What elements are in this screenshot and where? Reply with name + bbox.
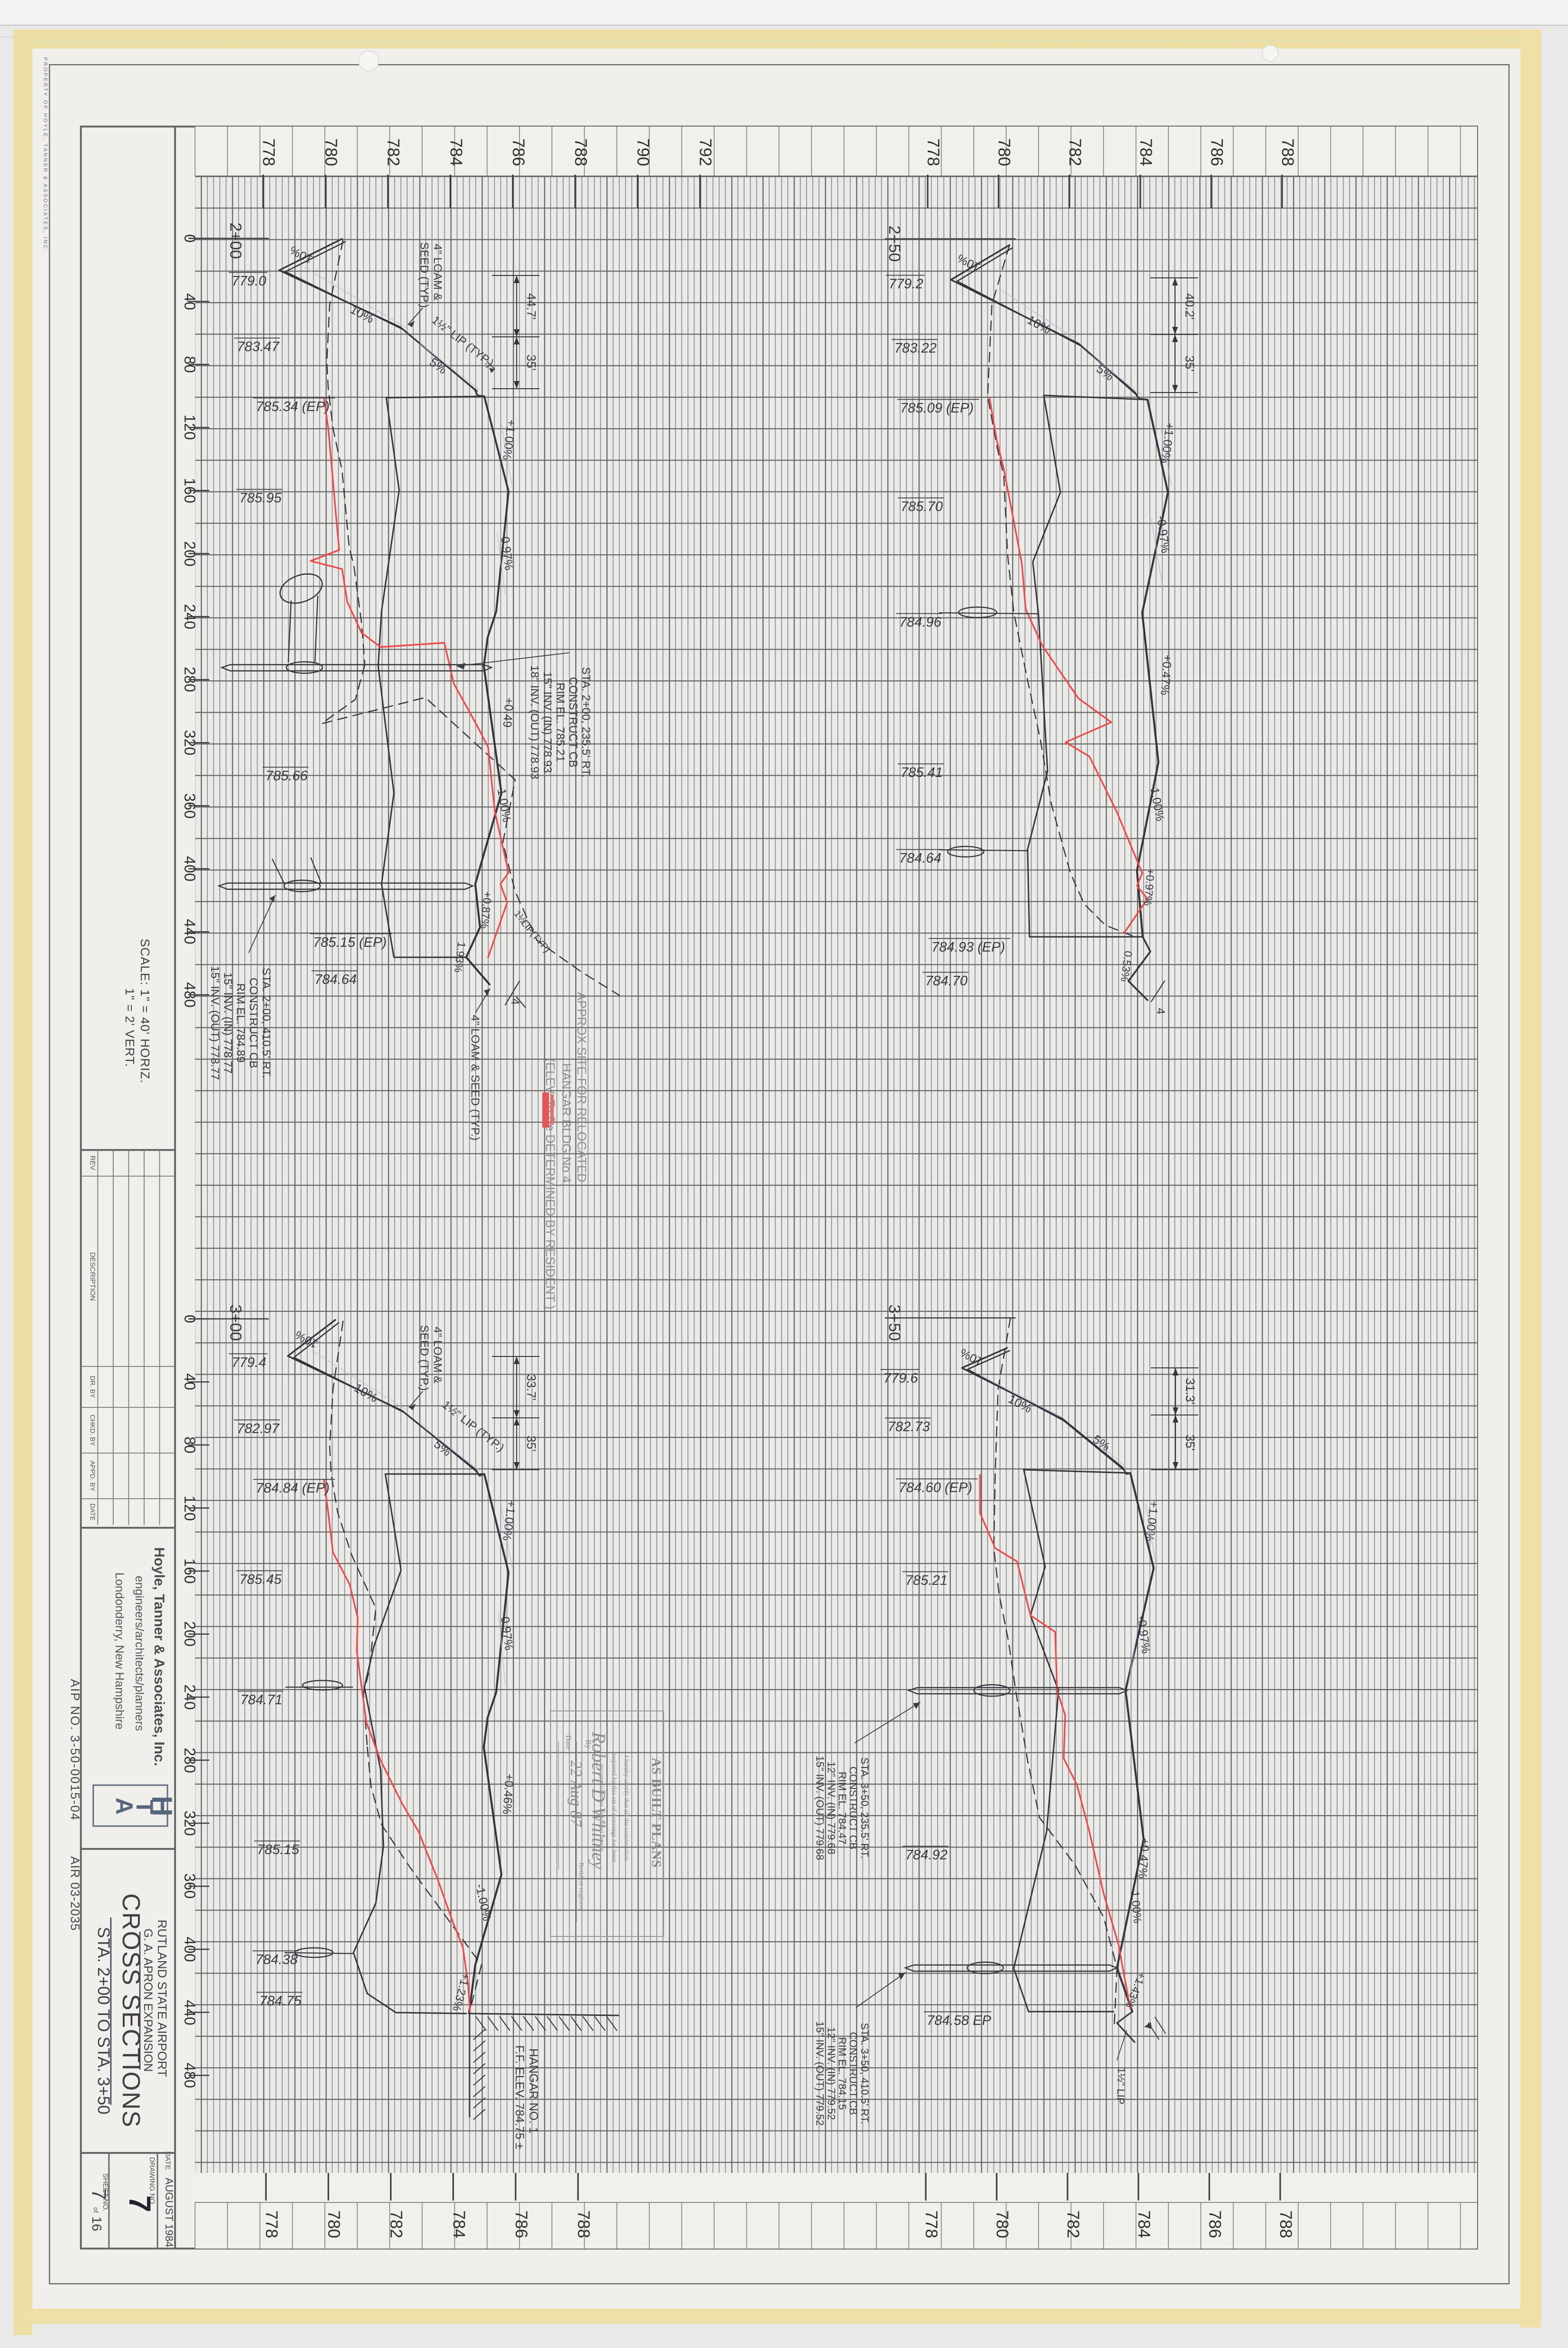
svg-text:788: 788 (571, 138, 590, 166)
svg-text:CONSTRUCT CB: CONSTRUCT CB (847, 1767, 859, 1849)
svg-text:778: 778 (922, 2210, 941, 2238)
svg-text:PROPERTY OF HOYLE, TANNER & AS: PROPERTY OF HOYLE, TANNER & ASSOCIATES, … (42, 57, 48, 253)
svg-text:15" INV. (OUT) 779.68: 15" INV. (OUT) 779.68 (814, 1756, 826, 1860)
svg-text:31.3': 31.3' (1183, 1378, 1197, 1405)
svg-text:3+00: 3+00 (226, 1305, 245, 1341)
svg-text:engineers/architects/planners: engineers/architects/planners (133, 1576, 146, 1731)
svg-text:778: 778 (259, 138, 278, 166)
svg-text:+0.46%: +0.46% (500, 1773, 516, 1815)
svg-text:782.73: 782.73 (888, 1419, 930, 1434)
svg-text:784.38: 784.38 (255, 1952, 298, 1967)
svg-text:Date: Date (564, 1735, 572, 1749)
svg-text:18" INV. (OUT) 778.93: 18" INV. (OUT) 778.93 (528, 665, 541, 779)
svg-text:Resident engineer: Resident engineer (578, 1863, 585, 1911)
svg-text:40.2': 40.2' (1183, 293, 1197, 320)
svg-text:784.96: 784.96 (899, 615, 942, 630)
svg-text:33.7': 33.7' (524, 1374, 539, 1401)
svg-text:44.7': 44.7' (524, 293, 539, 320)
svg-text:Hoyle, Tanner & Associates, In: Hoyle, Tanner & Associates, Inc. (151, 1547, 167, 1766)
svg-text:784.93 (EP): 784.93 (EP) (931, 940, 1005, 955)
svg-text:792: 792 (696, 138, 715, 166)
svg-text:4" LOAM &: 4" LOAM & (431, 1326, 444, 1383)
svg-text:35': 35' (524, 1435, 539, 1452)
svg-text:RUTLAND STATE AIRPORT: RUTLAND STATE AIRPORT (155, 1920, 169, 2077)
svg-text:CONSTRUCT CB: CONSTRUCT CB (567, 677, 579, 767)
svg-text:CONSTRUCT CB: CONSTRUCT CB (847, 2032, 859, 2115)
svg-text:+0.47%: +0.47% (1158, 654, 1174, 696)
svg-text:SCALE: 1" = 40' HORIZ.: SCALE: 1" = 40' HORIZ. (138, 939, 152, 1083)
svg-text:35': 35' (1183, 1434, 1197, 1451)
svg-text:784.75: 784.75 (259, 1994, 302, 2009)
svg-text:784: 784 (1137, 138, 1155, 166)
svg-text:RIM EL. 784.15: RIM EL. 784.15 (836, 2037, 848, 2110)
svg-text:779.2: 779.2 (889, 276, 923, 292)
svg-text:778: 778 (262, 2210, 281, 2238)
svg-text:786: 786 (509, 138, 528, 166)
svg-text:784.70: 784.70 (925, 973, 968, 989)
svg-text:782: 782 (1066, 138, 1084, 166)
svg-text:HANGAR NO. 1: HANGAR NO. 1 (527, 2048, 540, 2133)
svg-text:HANGAR BLDG No 4,: HANGAR BLDG No 4, (559, 1063, 574, 1187)
svg-text:784: 784 (450, 2210, 468, 2238)
svg-text:+0.49: +0.49 (500, 697, 516, 728)
svg-text:782: 782 (387, 2210, 405, 2238)
svg-text:785.66: 785.66 (265, 768, 308, 784)
svg-text:780: 780 (995, 138, 1013, 166)
svg-text:790: 790 (634, 138, 652, 166)
svg-text:3+50: 3+50 (885, 1305, 903, 1341)
svg-text:RIM EL. 785.21: RIM EL. 785.21 (554, 683, 567, 762)
svg-text:784.92: 784.92 (905, 1847, 948, 1863)
svg-text:Londonderry, New Hampshire: Londonderry, New Hampshire (113, 1572, 126, 1729)
svg-text:RIM EL. 784.89: RIM EL. 784.89 (234, 983, 247, 1063)
svg-text:F.F. ELEV. 784.75 ±: F.F. ELEV. 784.75 ± (513, 2045, 526, 2150)
svg-text:780: 780 (322, 138, 340, 166)
svg-text:784.58 EP: 784.58 EP (927, 2013, 991, 2028)
svg-text:784: 784 (1135, 2210, 1153, 2238)
svg-text:DESCRIPTION: DESCRIPTION (88, 1252, 97, 1301)
svg-text:785.41: 785.41 (901, 765, 943, 780)
svg-text:780: 780 (324, 2210, 343, 2238)
svg-text:784.64: 784.64 (899, 851, 941, 866)
svg-text:15" INV. (IN) 778.77: 15" INV. (IN) 778.77 (221, 972, 234, 1073)
svg-text:+0.47%: +0.47% (1136, 1837, 1152, 1879)
svg-text:DATE: DATE (164, 2152, 172, 2170)
svg-text:785.15: 785.15 (257, 1842, 300, 1857)
svg-text:1" = 2' VERT.: 1" = 2' VERT. (123, 988, 137, 1067)
svg-text:required by this set of drawin: required by this set of drawings has bee… (610, 1754, 617, 1863)
svg-text:AIR 03-2035: AIR 03-2035 (68, 1857, 82, 1931)
svg-text:779.6: 779.6 (883, 1371, 918, 1386)
svg-text:784.60 (EP): 784.60 (EP) (899, 1480, 972, 1495)
svg-text:STA. 2+00 TO STA. 3+50: STA. 2+00 TO STA. 3+50 (94, 1927, 113, 2114)
svg-text:RIM EL. 784.47: RIM EL. 784.47 (836, 1772, 848, 1845)
svg-text:22 Aug 87: 22 Aug 87 (567, 1760, 585, 1827)
svg-text:I hereby certify that all the: I hereby certify that all the constructi… (623, 1755, 630, 1861)
svg-text:CONSTRUCT CB: CONSTRUCT CB (247, 978, 260, 1068)
svg-text:785.34 (EP): 785.34 (EP) (256, 399, 330, 414)
svg-text:779.4: 779.4 (232, 1355, 266, 1370)
svg-text:786: 786 (512, 2210, 530, 2238)
svg-text:Robert D Whitney: Robert D Whitney (588, 1731, 609, 1869)
svg-text:STA. 2+00, 235.5' RT.: STA. 2+00, 235.5' RT. (579, 667, 592, 778)
svg-text:779.0: 779.0 (232, 274, 266, 289)
svg-text:783.22: 783.22 (894, 341, 937, 356)
svg-text:SEED (TYP.): SEED (TYP.) (418, 242, 431, 308)
svg-text:4" LOAM & SEED (TYP.): 4" LOAM & SEED (TYP.) (469, 1015, 481, 1140)
svg-text:784: 784 (447, 138, 465, 166)
svg-text:780: 780 (993, 2210, 1011, 2238)
svg-text:15" INV. (OUT) 779.52: 15" INV. (OUT) 779.52 (814, 2021, 826, 2126)
svg-text:4: 4 (1154, 1008, 1167, 1014)
svg-text:DR. BY: DR. BY (89, 1376, 97, 1398)
svg-text:12" INV. (IN) 779.68: 12" INV. (IN) 779.68 (825, 1761, 837, 1854)
svg-text:785.09 (EP): 785.09 (EP) (900, 401, 974, 416)
svg-text:2+50: 2+50 (885, 226, 903, 262)
svg-text:788: 788 (1278, 138, 1297, 166)
svg-text:15" INV. (OUT) 778.77: 15" INV. (OUT) 778.77 (208, 966, 221, 1080)
svg-text:785.95: 785.95 (239, 491, 282, 506)
svg-text:786: 786 (1207, 138, 1226, 166)
svg-text:AIP NO. 3-50-0015-04: AIP NO. 3-50-0015-04 (68, 1679, 82, 1821)
svg-text:785.45: 785.45 (239, 1572, 282, 1587)
svg-text:784.64: 784.64 (314, 972, 357, 987)
svg-text:DATE: DATE (89, 1503, 97, 1521)
svg-text:782.97: 782.97 (237, 1421, 280, 1436)
svg-text:of: of (92, 2207, 100, 2213)
svg-text:784.84 (EP): 784.84 (EP) (256, 1481, 330, 1496)
svg-text:7: 7 (88, 2189, 110, 2200)
svg-text:788: 788 (574, 2210, 593, 2238)
svg-text:2+00: 2+00 (226, 223, 245, 259)
svg-text:785.21: 785.21 (905, 1573, 948, 1588)
svg-text:786: 786 (1205, 2210, 1224, 2238)
svg-text:785.15 (EP): 785.15 (EP) (313, 935, 387, 950)
svg-text:16: 16 (89, 2216, 104, 2231)
svg-text:STA. 2+00, 410.5' RT.: STA. 2+00, 410.5' RT. (260, 968, 273, 1079)
svg-text:A: A (111, 1798, 137, 1815)
svg-text:15" INV. (IN) 778.93: 15" INV. (IN) 778.93 (541, 671, 554, 773)
svg-text:782: 782 (1064, 2210, 1082, 2238)
svg-text:35': 35' (524, 354, 539, 371)
svg-text:4" LOAM &: 4" LOAM & (431, 244, 444, 300)
svg-text:782: 782 (384, 138, 402, 166)
svg-text:STA. 3+50, 235.5' RT.: STA. 3+50, 235.5' RT. (859, 1757, 871, 1858)
svg-text:REV: REV (88, 1156, 97, 1170)
svg-text:AS BUILT PLANS: AS BUILT PLANS (649, 1758, 664, 1868)
svg-text:CHKD. BY: CHKD. BY (89, 1415, 97, 1446)
svg-text:APPROX SITE FOR RELOCATED: APPROX SITE FOR RELOCATED (575, 992, 589, 1182)
svg-text:784.71: 784.71 (240, 1692, 283, 1708)
svg-text:12" INV. (IN) 779.52: 12" INV. (IN) 779.52 (825, 2027, 837, 2120)
svg-text:785.70: 785.70 (901, 499, 943, 514)
svg-text:778: 778 (924, 138, 942, 166)
svg-text:AUGUST 1984: AUGUST 1984 (163, 2178, 175, 2247)
svg-text:35': 35' (1183, 355, 1197, 372)
svg-text:STA. 3+50, 410.5' RT.: STA. 3+50, 410.5' RT. (859, 2023, 871, 2124)
svg-text:CROSS SECTIONS: CROSS SECTIONS (117, 1893, 145, 2128)
svg-text:APPD. BY: APPD. BY (89, 1461, 97, 1492)
svg-text:783.47: 783.47 (237, 339, 280, 354)
svg-text:1½" LIP: 1½" LIP (1115, 2067, 1128, 2104)
svg-text:SEED (TYP.): SEED (TYP.) (418, 1325, 431, 1391)
svg-text:7: 7 (123, 2195, 157, 2212)
svg-text:788: 788 (1276, 2210, 1295, 2238)
svg-text:4: 4 (509, 998, 521, 1004)
